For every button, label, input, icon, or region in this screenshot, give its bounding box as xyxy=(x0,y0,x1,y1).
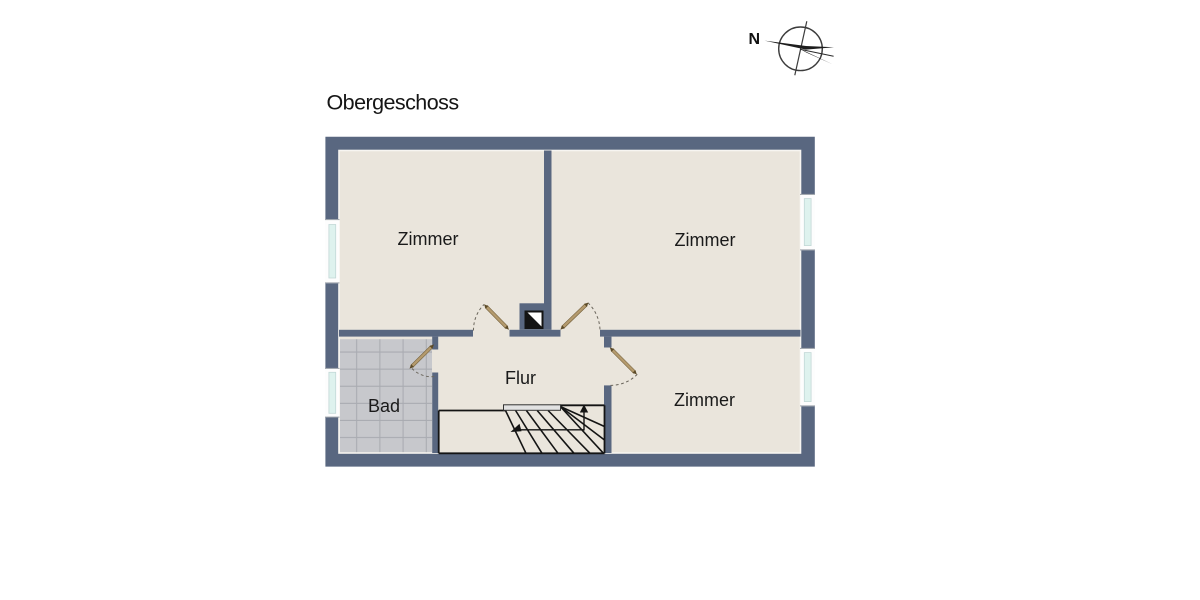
svg-text:Zimmer: Zimmer xyxy=(674,390,735,410)
svg-text:Obergeschoss: Obergeschoss xyxy=(327,91,459,115)
svg-text:Flur: Flur xyxy=(505,368,536,388)
svg-text:Zimmer: Zimmer xyxy=(675,230,736,250)
svg-text:Bad: Bad xyxy=(368,396,400,416)
svg-text:Zimmer: Zimmer xyxy=(398,229,459,249)
svg-text:N: N xyxy=(749,31,761,48)
